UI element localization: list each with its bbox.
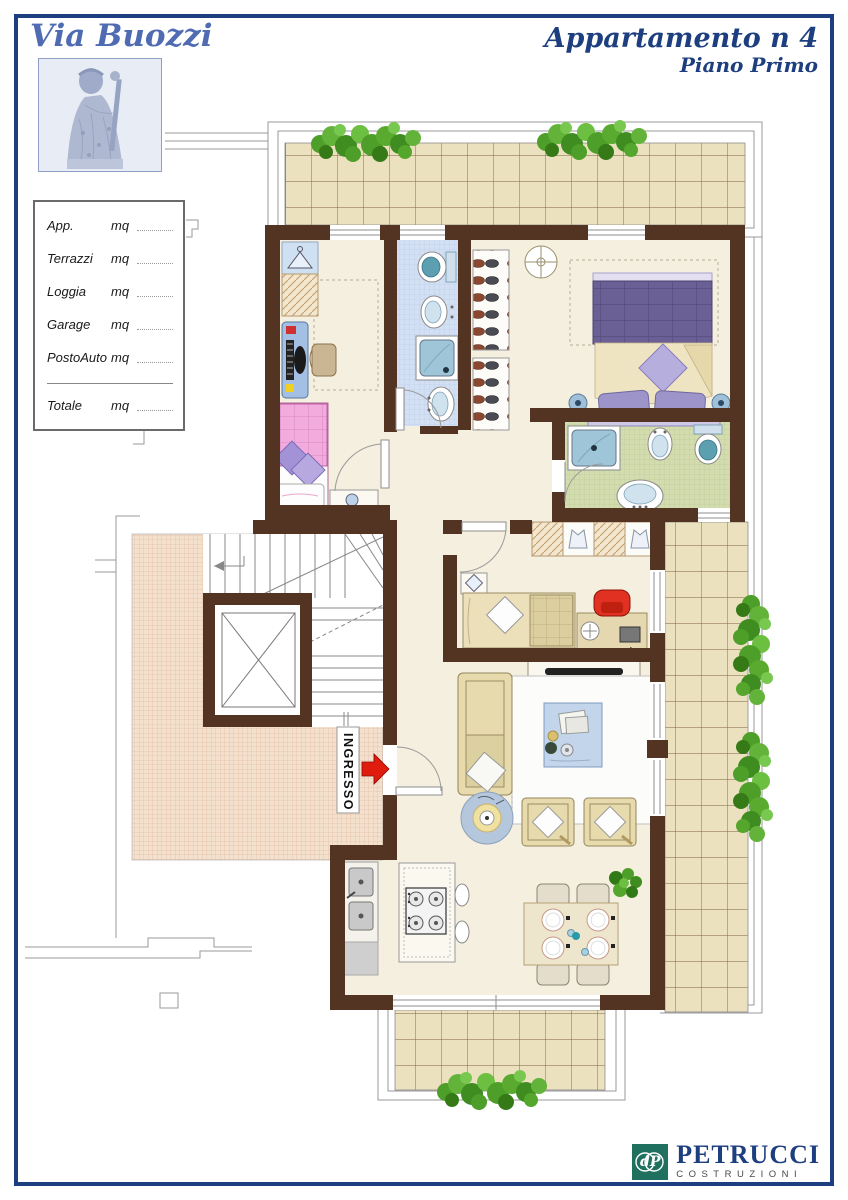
single-bed [463,593,575,648]
coffee-table [544,703,602,767]
window [650,570,665,633]
logo-monogram-icon: dP [632,1144,668,1180]
brand-name: PETRUCCI [676,1143,820,1167]
street-name-label: Via Buozzi [30,18,213,54]
measure-row: App. mq [47,218,173,233]
bath2-opening [552,460,565,492]
measure-row: PostoAuto mq [47,350,173,365]
window [650,682,665,740]
floorplan-page: INGRESSO Via Buozzi Appartam [0,0,848,1200]
logo-texts: PETRUCCI COSTRUZIONI [676,1143,820,1180]
single-bed-pink [272,403,328,511]
double-bed [588,273,720,426]
armchair [522,798,574,846]
terrace-right [665,522,748,1012]
island-hob [399,863,455,962]
ceiling-fan-icon [525,246,557,278]
measure-row-total: Totale mq [47,398,173,413]
window [330,225,380,240]
value-leader [137,229,173,231]
elevator [203,593,312,727]
measurements-box: App. mq Terrazzi mq Loggia mq Garage mq … [33,200,185,431]
sink-unit [344,862,378,975]
desk-chair-red [594,590,630,616]
statue-photo [38,58,162,172]
side-table [461,792,513,844]
toilet [418,252,456,282]
window-door [393,995,600,1010]
window [400,225,445,240]
washbasin [617,480,663,512]
bidet [648,428,672,460]
sofa [458,673,512,795]
total-separator [47,383,173,384]
desk-computer [282,322,308,398]
wardrobe [282,242,318,316]
floor-subtitle: Piano Primo [545,54,818,76]
floor-plan: INGRESSO [0,0,848,1200]
window [698,508,730,522]
closet-row [532,522,656,556]
value-leader [137,295,173,297]
shower [416,336,458,380]
entrance-label: INGRESSO [341,733,355,811]
office-chair [310,344,336,376]
measure-row: Terrazzi mq [47,251,173,266]
toilet [694,425,722,464]
kitchen-mat [344,942,378,975]
shower [568,426,620,470]
desk [577,613,647,652]
plan-titles: Appartamento n 4 Piano Primo [545,24,818,76]
nightstand [461,573,487,594]
brand-subtitle: COSTRUZIONI [676,1169,802,1180]
armchair [584,798,636,846]
window [650,758,665,816]
measure-row: Loggia mq [47,284,173,299]
value-leader [137,262,173,264]
builder-logo: dP PETRUCCI COSTRUZIONI [626,1143,820,1180]
value-leader [137,409,173,411]
living-room [458,656,652,846]
measure-row: Garage mq [47,317,173,332]
value-leader [137,361,173,363]
statue-image [39,59,159,169]
terrace-bottom [395,1010,605,1090]
window [588,225,645,240]
value-leader [137,328,173,330]
apartment-title: Appartamento n 4 [545,24,818,54]
shoe-rack [473,250,509,430]
